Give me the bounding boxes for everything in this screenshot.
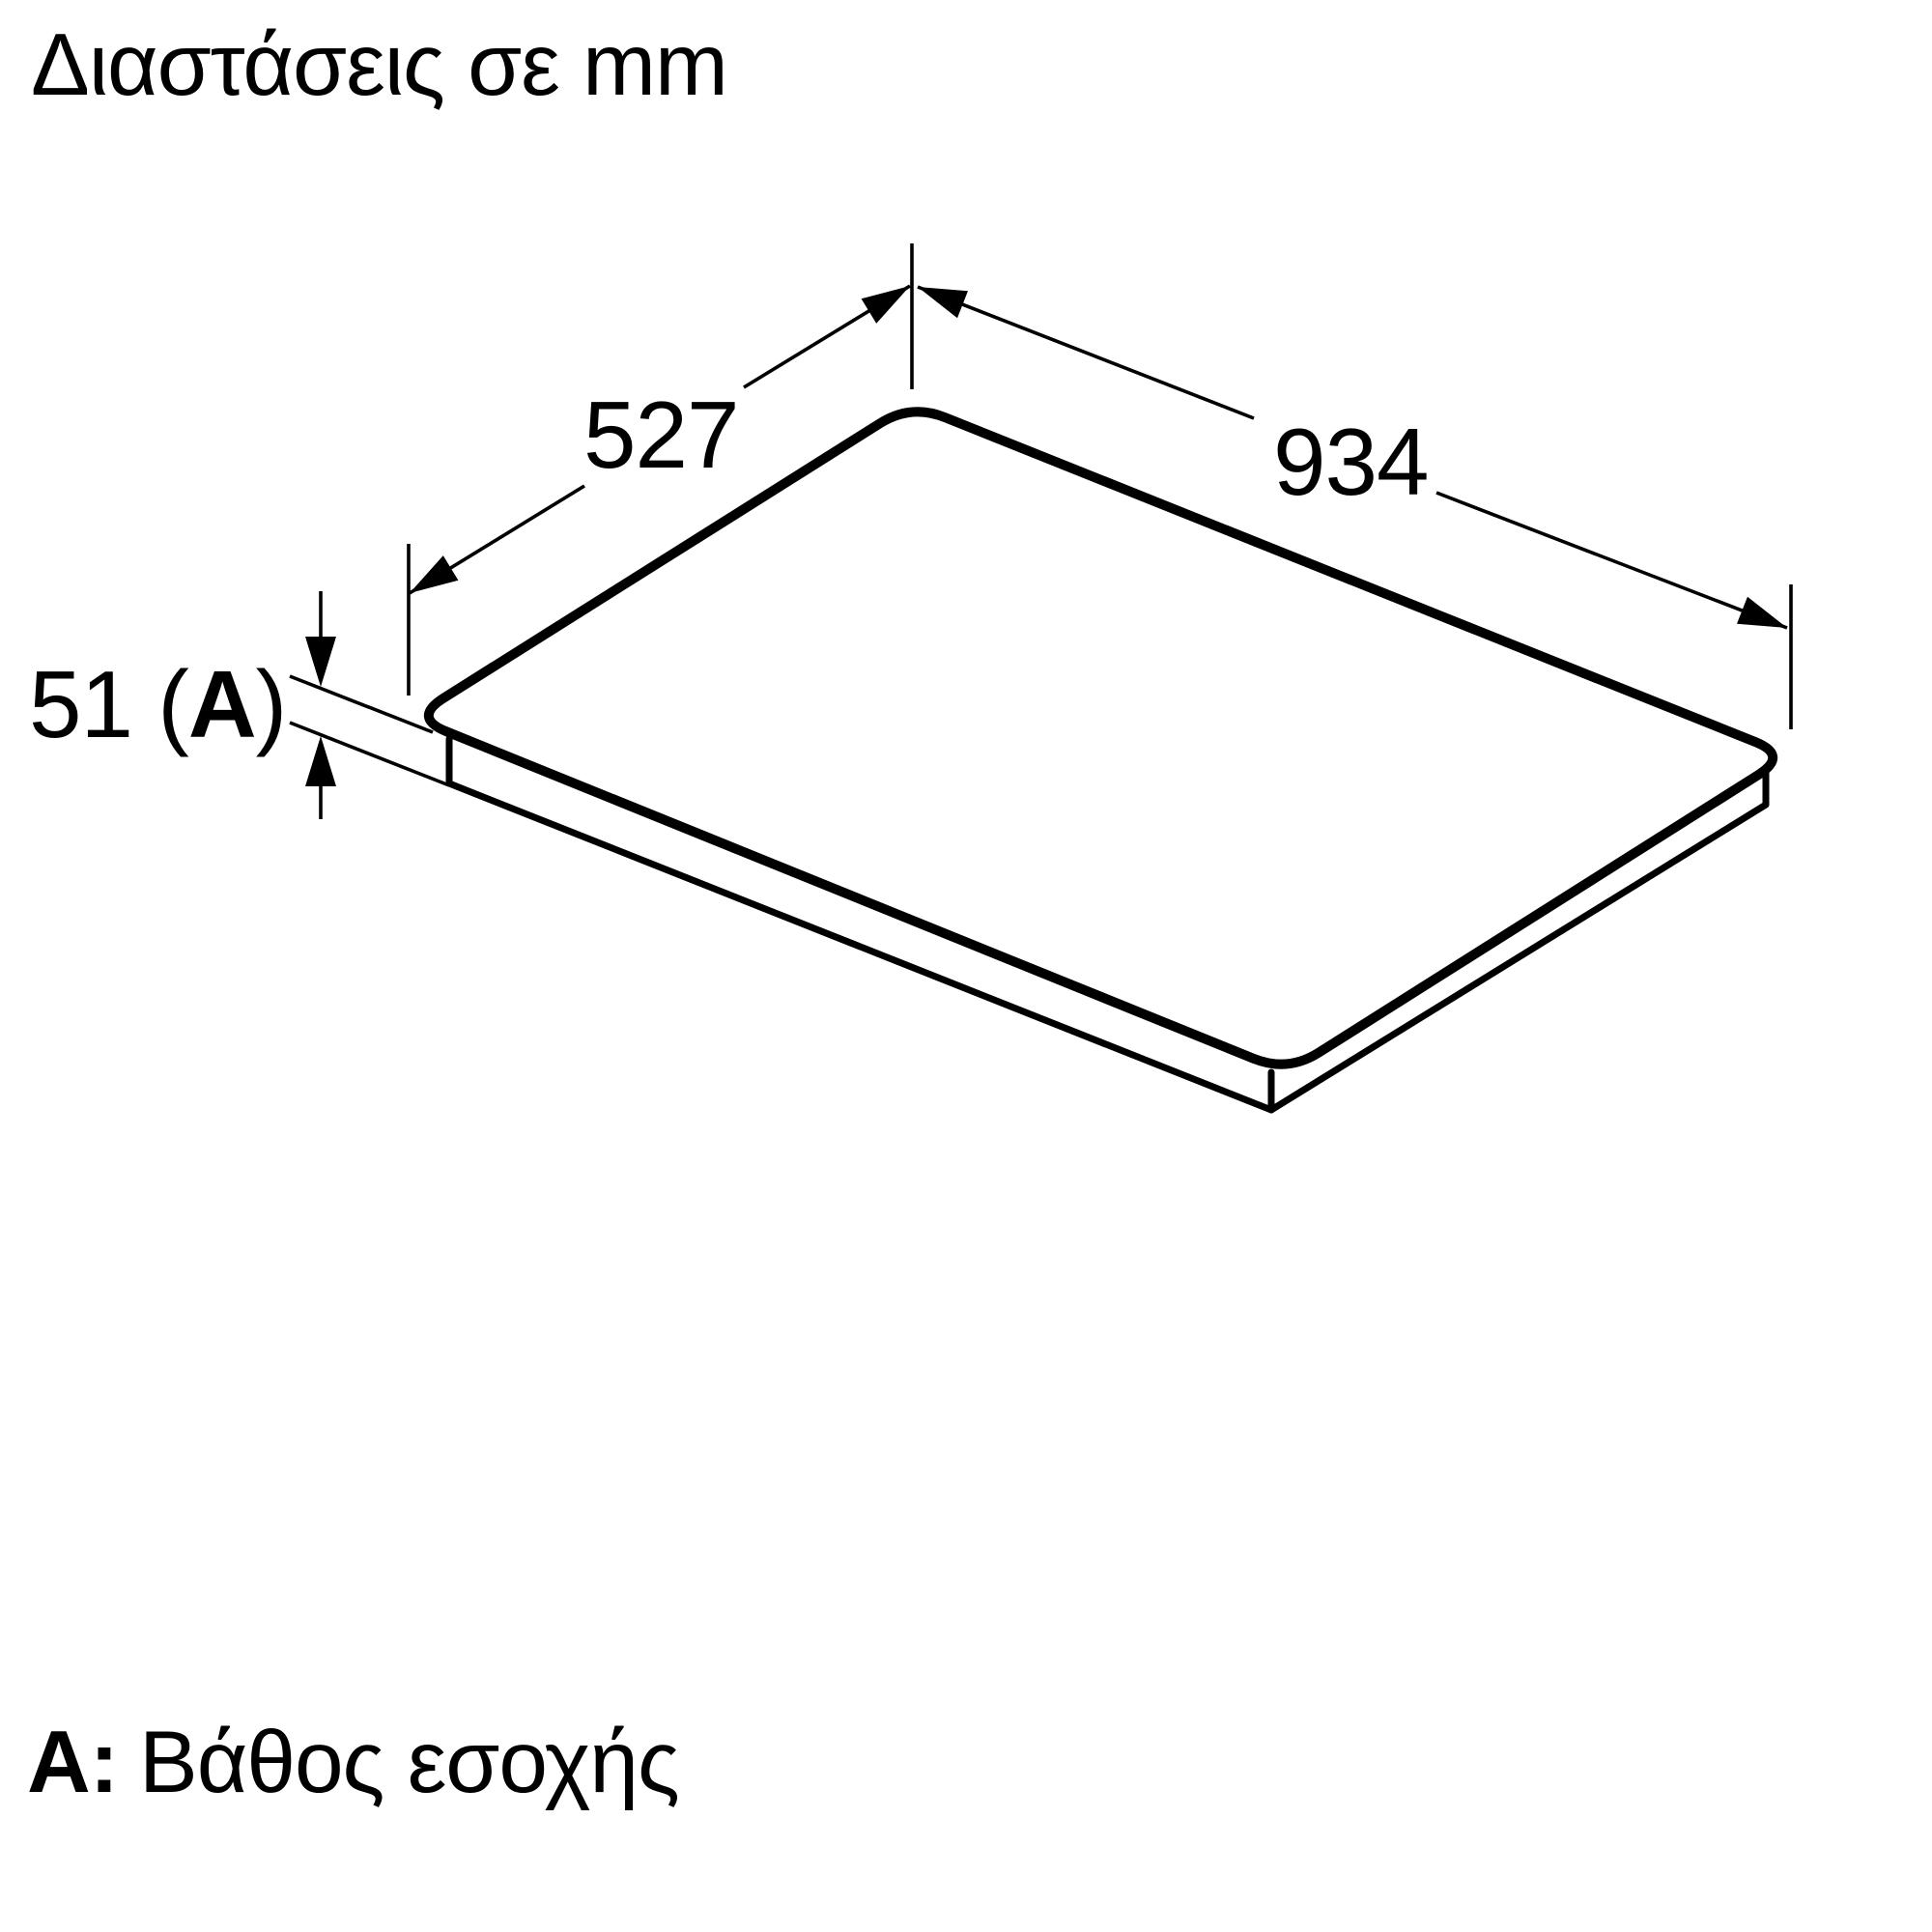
legend-label: A: xyxy=(27,1714,118,1811)
dimension-diagram: Διαστάσεις σε mm 527 934 51 (A) A:Βά xyxy=(0,0,1932,1932)
label-51-suffix: ) xyxy=(256,651,287,757)
arrowhead-527-right xyxy=(862,286,910,324)
arrowhead-51-down xyxy=(305,637,336,687)
dimension-line-934-b xyxy=(1436,493,1787,628)
hob-top-outline xyxy=(429,412,1773,1064)
dimension-label-934: 934 xyxy=(1273,409,1429,515)
dimension-51A: 51 (A) xyxy=(29,591,449,819)
page-title: Διαστάσεις σε mm xyxy=(31,16,727,114)
hob-drawing xyxy=(429,412,1773,1110)
dimension-527: 527 xyxy=(409,243,912,696)
extension-line-51-upper xyxy=(290,676,433,732)
hob-base-outline xyxy=(449,739,1766,1110)
label-51-prefix: 51 ( xyxy=(29,651,189,757)
legend-text: Βάθος εσοχής xyxy=(139,1714,679,1811)
dimension-label-51A: 51 (A) xyxy=(29,651,286,757)
arrowhead-934-left xyxy=(918,287,968,318)
arrowhead-934-right xyxy=(1737,597,1787,628)
label-51-letter: A xyxy=(188,651,256,757)
dimension-934: 934 xyxy=(918,287,1791,729)
arrowhead-527-left xyxy=(410,555,458,593)
arrowhead-51-up xyxy=(305,736,336,786)
legend-note: A:Βάθος εσοχής xyxy=(27,1714,679,1811)
dimension-label-527: 527 xyxy=(583,382,739,488)
dimension-line-934-a xyxy=(918,287,1254,418)
